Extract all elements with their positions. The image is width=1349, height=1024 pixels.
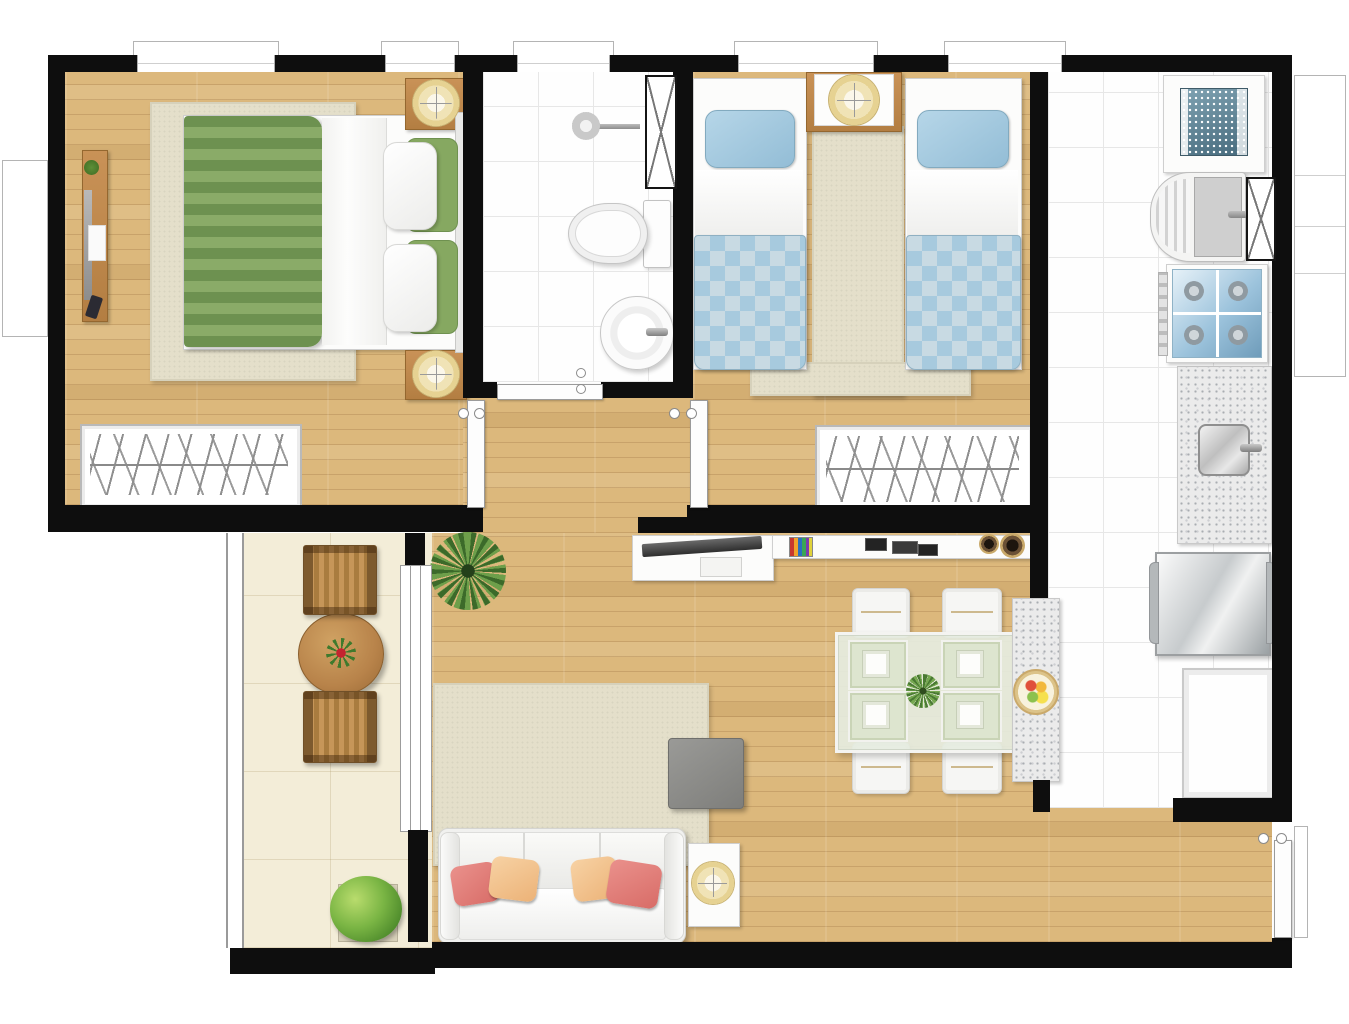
stove-burner-4	[1228, 325, 1248, 345]
toilet-bowl	[568, 203, 648, 264]
speaker-right	[1000, 533, 1025, 558]
shower-arm	[596, 124, 640, 129]
hinge-bedroom2-door-2	[686, 408, 697, 419]
bedroom2-pillow-left	[705, 110, 795, 168]
bedroom2-wardrobe-rail	[826, 436, 1019, 502]
refrigerator-handle-left	[1149, 562, 1159, 644]
shelf-frame-2	[892, 541, 918, 554]
wall-sliding-door-top-stub	[405, 533, 425, 565]
window-kitchen	[948, 55, 1062, 72]
balcony-railing	[226, 533, 244, 948]
dining-chair-top-left	[852, 588, 910, 638]
wall-bedroom1-bottom	[48, 505, 483, 532]
stove-burner-2	[1228, 281, 1248, 301]
wall-bathroom-bottom-right	[601, 382, 673, 398]
plate-2	[956, 650, 984, 678]
tv-media-box	[700, 557, 742, 577]
bedroom2-sheet-right	[907, 170, 1018, 237]
bathroom-shaft	[645, 75, 677, 189]
entry-floor	[1048, 808, 1272, 942]
window-bedroom1	[137, 55, 275, 72]
bedroom1-lamp-bottom	[412, 350, 460, 398]
bedroom2-lamp	[828, 74, 880, 126]
washbasin-faucet	[646, 328, 668, 336]
washing-machine-basket	[1180, 88, 1248, 156]
hinge-entry-door-2	[1276, 833, 1287, 844]
bedroom1-wardrobe-rail	[90, 434, 288, 495]
shelf-books	[789, 537, 813, 557]
bedroom1-dresser-plant	[84, 160, 99, 175]
kitchen-cabinet	[1182, 668, 1274, 799]
wall-top-3	[453, 55, 517, 72]
bedroom1-lamp-top	[412, 79, 460, 127]
sofa-pillow-coral-right	[605, 858, 663, 910]
plate-3	[862, 701, 890, 729]
balcony-chair-bottom	[303, 691, 377, 763]
wall-bedroom1-bathroom	[463, 72, 483, 398]
wall-top-5	[872, 55, 948, 72]
hinge-entry-door	[1258, 833, 1269, 844]
stove-handle	[1158, 272, 1168, 356]
side-table-lamp	[691, 861, 735, 905]
bedroom2-blanket-right	[906, 235, 1021, 370]
wall-bottom-exterior	[432, 942, 1292, 968]
wall-sliding-door-bottom-stub	[408, 830, 428, 942]
apartment-floor-plan	[0, 0, 1349, 1024]
shower-head	[572, 112, 600, 140]
shelf-frame-3	[918, 544, 938, 556]
shelf-frame-1	[865, 538, 887, 551]
stove-top	[1172, 269, 1262, 358]
bedroom2-runner-rug	[812, 126, 904, 396]
window-sill-top-1	[133, 41, 279, 56]
window-sill-top-5	[944, 41, 1066, 56]
bathroom-door-stop	[576, 384, 586, 394]
wall-bedroom2-kitchen	[1030, 55, 1048, 598]
window-sill-left	[2, 160, 48, 337]
wall-balcony-bottom	[230, 948, 435, 974]
wall-living-top	[638, 517, 1048, 533]
dining-chair-top-right	[942, 588, 1002, 638]
plate-4	[956, 701, 984, 729]
stove-burner-1	[1184, 281, 1204, 301]
wall-top-2	[273, 55, 385, 72]
wall-bathroom-bottom-left	[483, 382, 497, 398]
window-sill-top-3	[513, 41, 614, 56]
table-centerpiece-plant	[906, 674, 940, 708]
kitchen-sink-faucet	[1240, 444, 1262, 452]
bedroom1-white-duvet	[322, 118, 387, 345]
entry-door-frame-outer	[1294, 826, 1308, 938]
refrigerator	[1155, 552, 1271, 656]
window-sill-right	[1294, 75, 1346, 377]
window-sill-top-2	[381, 41, 459, 56]
bedroom2-blanket-left	[694, 235, 806, 370]
hinge-bedroom1-door	[458, 408, 469, 419]
entry-door	[1274, 840, 1292, 938]
palm-plant	[430, 532, 506, 610]
hallway-floor	[463, 398, 693, 533]
balcony-chair-top	[303, 545, 377, 615]
plate-1	[862, 650, 890, 678]
hinge-bedroom2-door	[669, 408, 680, 419]
stove-burner-3	[1184, 325, 1204, 345]
bedroom1-pillow-white-bottom	[383, 244, 437, 332]
wall-top-4	[608, 55, 738, 72]
bedroom2-sheet-left	[695, 170, 803, 237]
window-sill-top-4	[734, 41, 878, 56]
bathroom-door	[497, 384, 603, 400]
bedroom1-dresser-paper	[88, 225, 106, 261]
wall-right-exterior	[1272, 55, 1292, 822]
wall-left-exterior	[48, 55, 65, 532]
bedroom1-pillow-white-top	[383, 142, 437, 230]
sliding-door	[400, 565, 432, 832]
balcony-table-flower	[326, 638, 356, 668]
wall-top-6	[1060, 55, 1292, 72]
window-bathroom	[517, 55, 610, 72]
window-bedroom2	[738, 55, 874, 72]
bedroom1-green-blanket	[184, 116, 322, 347]
balcony-plant	[330, 876, 402, 942]
sofa-armrest-right	[664, 832, 684, 940]
bedroom2-pillow-right	[917, 110, 1009, 168]
bathroom-floor-drain	[576, 368, 586, 378]
sofa-pillow-peach-left	[488, 855, 541, 903]
speaker-left	[979, 534, 999, 554]
gray-pouf	[668, 738, 744, 809]
kitchen-shaft	[1246, 177, 1276, 261]
wall-counter-stub	[1033, 780, 1050, 812]
hinge-bedroom1-door-2	[474, 408, 485, 419]
window-bedroom1-right	[385, 55, 455, 72]
fruit-bowl	[1013, 669, 1059, 715]
